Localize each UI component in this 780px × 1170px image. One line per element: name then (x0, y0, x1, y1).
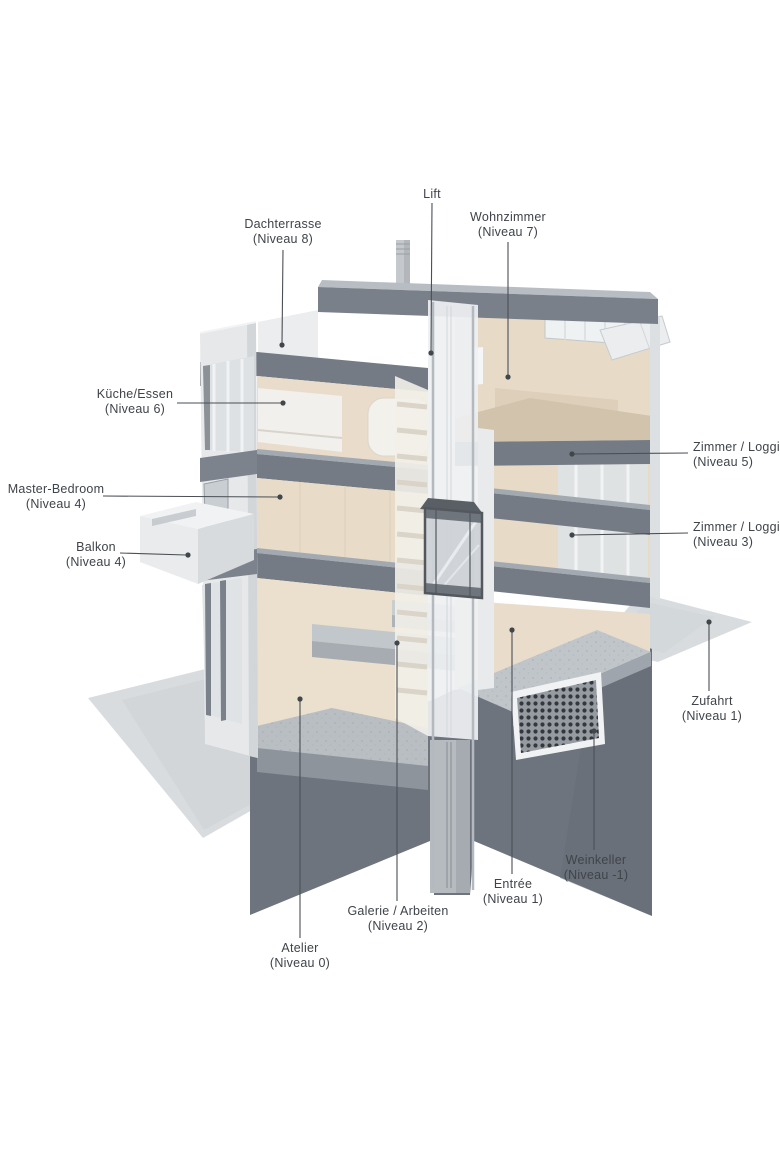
label-title: Dachterrasse (244, 217, 321, 232)
label-master-bedroom: Master-Bedroom (Niveau 4) (8, 482, 105, 512)
label-title: Küche/Essen (97, 387, 173, 402)
label-subtitle: (Niveau 5) (693, 455, 780, 470)
label-weinkeller: Weinkeller (Niveau -1) (564, 853, 629, 883)
label-wohnzimmer: Wohnzimmer (Niveau 7) (470, 210, 546, 240)
label-lift: Lift (423, 187, 441, 202)
label-subtitle: (Niveau -1) (564, 868, 629, 883)
label-subtitle: (Niveau 0) (270, 956, 330, 971)
label-title: Zufahrt (682, 694, 742, 709)
label-title: Zimmer / Loggia (693, 520, 780, 535)
label-subtitle: (Niveau 1) (682, 709, 742, 724)
label-title: Zimmer / Loggia (693, 440, 780, 455)
label-atelier: Atelier (Niveau 0) (270, 941, 330, 971)
building-cutaway-illustration (0, 0, 780, 1170)
label-title: Balkon (66, 540, 126, 555)
label-galerie-arbeiten: Galerie / Arbeiten (Niveau 2) (347, 904, 448, 934)
label-subtitle: (Niveau 8) (244, 232, 321, 247)
label-subtitle: (Niveau 4) (8, 497, 105, 512)
label-title: Weinkeller (564, 853, 629, 868)
label-kueche-essen: Küche/Essen (Niveau 6) (97, 387, 173, 417)
label-title: Wohnzimmer (470, 210, 546, 225)
label-title: Galerie / Arbeiten (347, 904, 448, 919)
label-subtitle: (Niveau 4) (66, 555, 126, 570)
label-title: Lift (423, 187, 441, 202)
label-title: Atelier (270, 941, 330, 956)
label-subtitle: (Niveau 7) (470, 225, 546, 240)
architectural-section-page: Lift Dachterrasse (Niveau 8) Wohnzimmer … (0, 0, 780, 1170)
label-zimmer-loggia-3: Zimmer / Loggia (Niveau 3) (693, 520, 780, 550)
label-zufahrt: Zufahrt (Niveau 1) (682, 694, 742, 724)
label-subtitle: (Niveau 3) (693, 535, 780, 550)
label-title: Entrée (483, 877, 543, 892)
label-zimmer-loggia-5: Zimmer / Loggia (Niveau 5) (693, 440, 780, 470)
label-dachterrasse: Dachterrasse (Niveau 8) (244, 217, 321, 247)
label-balkon: Balkon (Niveau 4) (66, 540, 126, 570)
label-subtitle: (Niveau 2) (347, 919, 448, 934)
label-subtitle: (Niveau 6) (97, 402, 173, 417)
label-entree: Entrée (Niveau 1) (483, 877, 543, 907)
label-subtitle: (Niveau 1) (483, 892, 543, 907)
label-title: Master-Bedroom (8, 482, 105, 497)
